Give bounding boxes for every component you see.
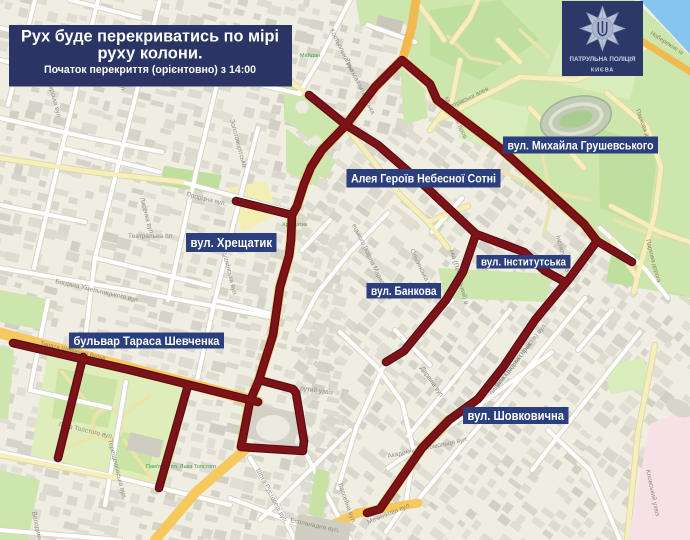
svg-text:вул. Михайла Грушевського: вул. Михайла Грушевського	[508, 138, 654, 152]
svg-text:бульвар Тараса Шевченка: бульвар Тараса Шевченка	[74, 334, 220, 348]
svg-text:Рух буде перекриватись по мірі: Рух буде перекриватись по мірі	[21, 28, 279, 46]
svg-text:Майдан: Майдан	[300, 52, 320, 59]
svg-text:Пам’ятка пл. Льва Толстого: Пам’ятка пл. Льва Толстого	[146, 464, 216, 470]
svg-text:Театральна пл.: Театральна пл.	[128, 233, 174, 240]
svg-text:Алея Героїв Небесної Сотні: Алея Героїв Небесної Сотні	[351, 172, 496, 186]
svg-text:ПАТРУЛЬНА ПОЛІЦІЯ: ПАТРУЛЬНА ПОЛІЦІЯ	[570, 56, 636, 63]
svg-text:КИЄВА: КИЄВА	[591, 68, 614, 74]
svg-text:вул. Інститутська: вул. Інститутська	[481, 257, 567, 269]
svg-text:руху колони.: руху колони.	[97, 45, 202, 63]
svg-text:вул. Банкова: вул. Банкова	[371, 285, 437, 298]
svg-text:вул. Хрещатик: вул. Хрещатик	[191, 236, 273, 250]
svg-text:вул. Шовковична: вул. Шовковична	[468, 409, 565, 423]
svg-text:Початок перекриття (орієнтовно: Початок перекриття (орієнтовно) з 14:00	[44, 64, 256, 76]
